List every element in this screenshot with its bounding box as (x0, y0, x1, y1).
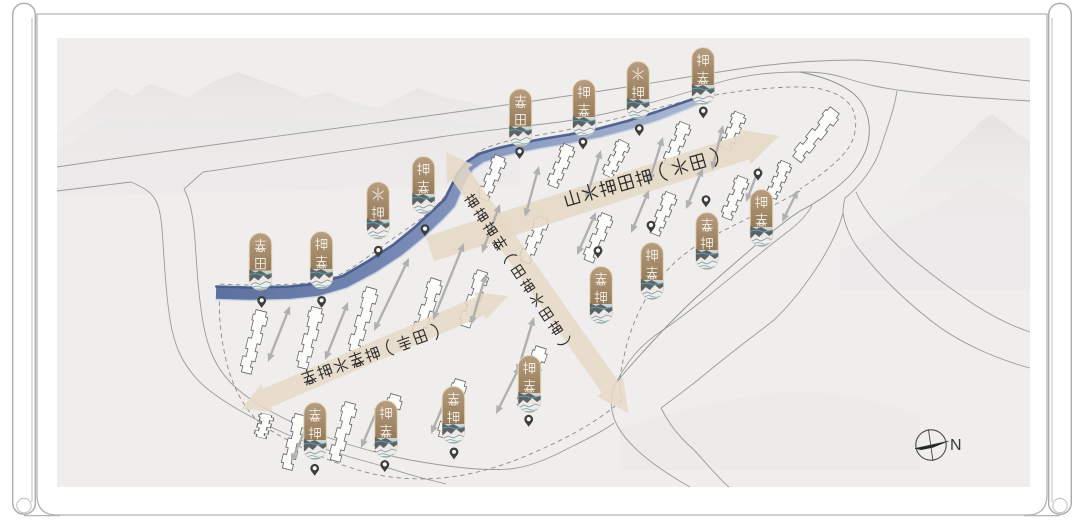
svg-text:N: N (950, 437, 962, 454)
